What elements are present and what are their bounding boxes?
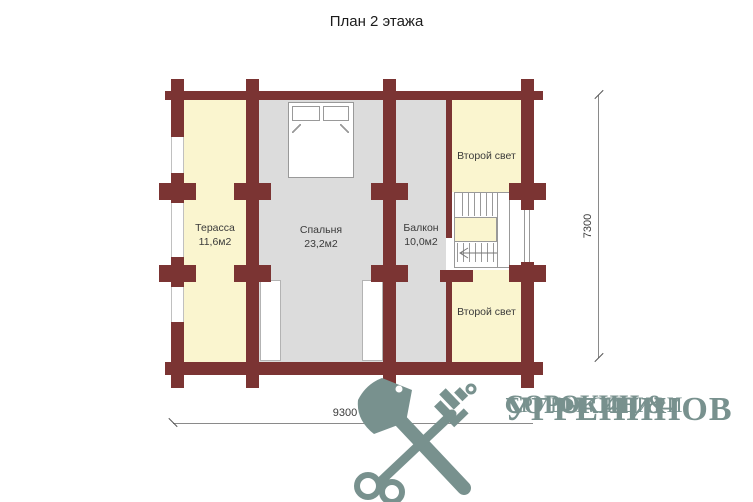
- log-tie: [159, 183, 196, 200]
- log-tie: [371, 183, 408, 200]
- log-end: [246, 375, 259, 388]
- log-end: [171, 375, 184, 388]
- pillow-icon: [292, 106, 320, 121]
- wall-bottom: [165, 362, 543, 375]
- crossed-axe-and-key-icon: [352, 376, 512, 502]
- stair-treads-upper: [462, 193, 498, 216]
- label-second-light-bottom: Второй свет: [447, 306, 526, 320]
- logo-tagline: СРУБЫ СИБИРИ: [505, 391, 683, 418]
- wall-top: [165, 91, 543, 100]
- wall-terrace-bedroom: [246, 91, 259, 375]
- wall-niche: [260, 280, 281, 361]
- wall-left: [171, 322, 184, 375]
- log-end: [171, 79, 184, 91]
- double-bed-icon: [288, 102, 354, 178]
- page-title: План 2 этажа: [0, 13, 753, 30]
- terrace-opening: [171, 137, 184, 173]
- log-end: [246, 79, 259, 91]
- log-end: [521, 375, 534, 388]
- label-bedroom: Спальня 23,2м2: [259, 224, 383, 251]
- log-tie: [440, 270, 473, 282]
- stair-direction-arrow-icon: [455, 245, 499, 261]
- terrace-opening: [171, 203, 184, 257]
- label-terrace: Терасса 11,6м2: [184, 222, 246, 249]
- log-tie: [509, 183, 546, 200]
- log-tie: [371, 265, 408, 282]
- log-end: [521, 79, 534, 91]
- floor-plan-page: План 2 этажа: [0, 0, 753, 502]
- terrace-opening: [171, 287, 184, 322]
- log-tie: [159, 265, 196, 282]
- room-second-light-top: [452, 100, 521, 192]
- dimension-line-vertical: [598, 95, 599, 358]
- partition-balcony: [446, 100, 452, 238]
- dimension-value-vertical: 7300: [582, 208, 596, 244]
- blanket-fold-icon: [292, 124, 301, 133]
- window-icon: [522, 210, 533, 262]
- log-tie: [234, 183, 271, 200]
- log-tie: [234, 265, 271, 282]
- window-glass-lines: [524, 210, 530, 262]
- wall-left: [171, 91, 184, 137]
- pillow-icon: [323, 106, 349, 121]
- stair-landing: [454, 217, 497, 242]
- dimension-tick: [594, 353, 603, 362]
- log-end: [383, 79, 396, 91]
- blanket-fold-icon: [340, 124, 349, 133]
- log-tie: [509, 265, 546, 282]
- wall-niche: [362, 280, 383, 361]
- label-second-light-top: Второй свет: [447, 150, 526, 164]
- dimension-tick: [594, 90, 603, 99]
- label-balcony: Балкон 10,0м2: [388, 222, 454, 249]
